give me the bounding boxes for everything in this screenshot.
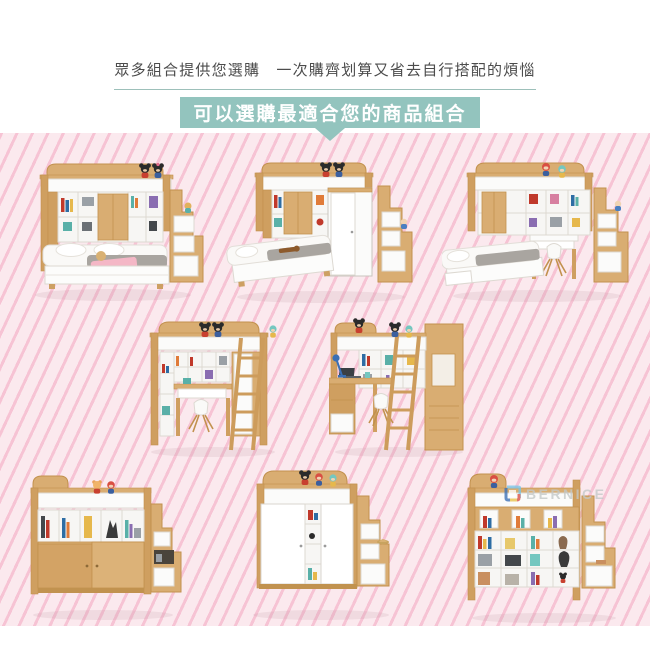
doll-plush-icon [615,201,621,211]
product-2 [226,160,420,305]
watermark: BERNICE [504,485,607,502]
product-7-illustration [247,466,400,622]
product-4 [143,318,283,459]
cubby-row [38,510,144,542]
banner-label: 可以選購最適合您的商品組合 [193,99,466,126]
bernice-logo-icon [504,485,521,502]
product-6 [25,470,183,622]
product-2-illustration [226,160,420,305]
red-character-plush-icon [107,481,115,494]
open-shelving [475,531,579,587]
banner-arrow-icon [315,128,345,141]
teal-doll-plush-icon [269,325,276,337]
bookshelf-wall [478,190,590,235]
stair-chest [170,190,203,282]
teal-doll-plush-icon [329,474,336,486]
double-bed [43,244,169,290]
red-character-plush-icon [315,473,323,486]
promo-image: 眾多組合提供您選購 一次購齊划算又省去自行搭配的煩惱 可以選購最適合您的商品組合 [0,0,650,650]
product-5 [329,318,471,459]
stair-chest [378,186,412,282]
product-1-illustration [25,160,205,304]
cubby-shelf [174,352,230,382]
product-3-illustration [442,160,634,304]
shelf-column [160,352,174,436]
watermark-text: BERNICE [526,486,607,502]
doll-plush-icon [401,219,407,229]
paneled-end-tower [425,324,463,450]
desk-chair [189,400,213,433]
header-tagline: 眾多組合提供您選購 一次購齊划算又省去自行搭配的煩惱 [114,59,535,90]
single-bed [442,240,544,285]
product-6-illustration [25,470,183,622]
upper-wood-shelf [475,507,579,531]
stair-chest [582,496,615,588]
bookshelf-wall [272,190,328,238]
stair-chest [594,188,628,282]
product-7 [247,466,400,622]
product-5-illustration [329,318,471,459]
stair-chest [357,496,389,586]
wood-sliding-doors [38,542,144,593]
header: 眾多組合提供您選購 一次購齊划算又省去自行搭配的煩惱 [0,59,650,90]
teal-doll-plush-icon [558,165,566,178]
single-bed [226,235,334,288]
teal-doll-plush-icon [405,325,412,337]
product-4-illustration [143,318,283,459]
bookshelf-wall [58,192,163,242]
sliding-wardrobe [259,504,357,589]
red-character-plush-icon [490,475,498,488]
product-3 [442,160,634,304]
stair-chest [151,504,181,592]
sliding-wardrobe [328,188,372,276]
banner: 可以選購最適合您的商品組合 [180,97,480,128]
product-1 [25,160,205,304]
monkey-plush-icon [185,203,192,214]
red-character-plush-icon [542,163,550,176]
